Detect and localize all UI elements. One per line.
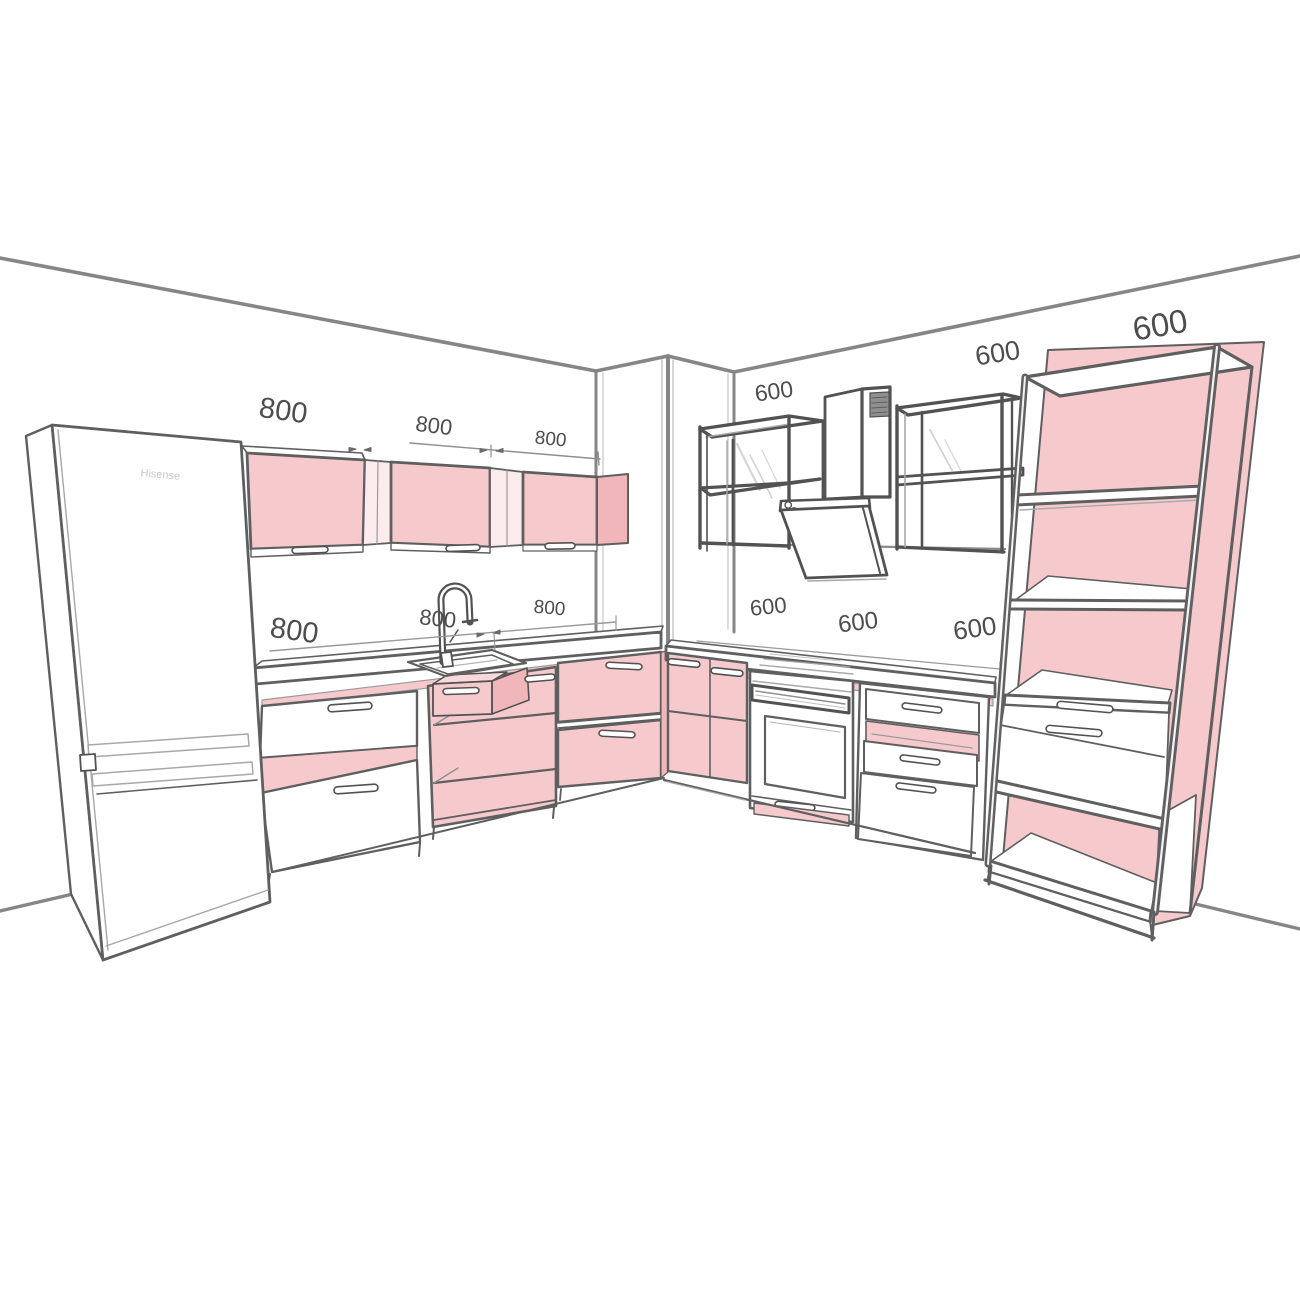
svg-text:800: 800 (257, 392, 309, 430)
svg-text:800: 800 (418, 604, 457, 633)
svg-text:600: 600 (753, 376, 795, 407)
svg-text:600: 600 (951, 610, 998, 646)
svg-text:800: 800 (268, 612, 320, 650)
svg-text:600: 600 (837, 607, 880, 639)
svg-text:600: 600 (1130, 302, 1191, 348)
svg-text:800: 800 (534, 427, 568, 451)
svg-text:800: 800 (533, 597, 566, 621)
svg-text:600: 600 (973, 335, 1022, 372)
svg-text:800: 800 (414, 411, 453, 440)
svg-text:600: 600 (749, 592, 788, 621)
